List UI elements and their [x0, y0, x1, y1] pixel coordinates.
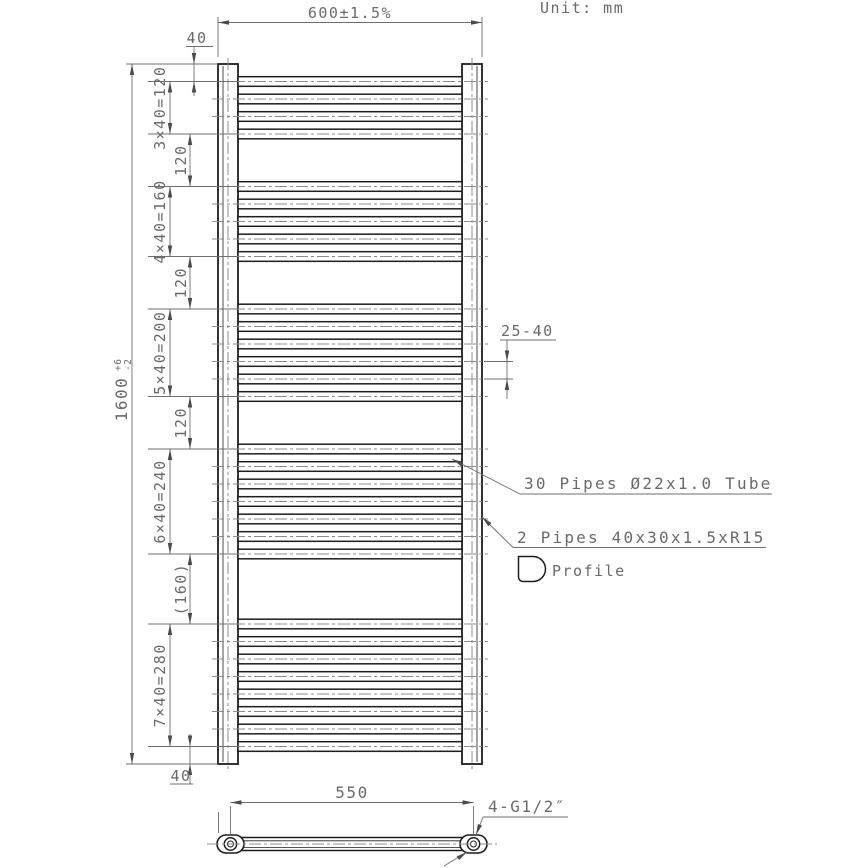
arrowhead — [168, 543, 172, 554]
height-tol-minus: -2 — [123, 359, 134, 371]
group-dim-label: 5×40=200 — [151, 311, 169, 395]
arrowhead — [188, 736, 192, 747]
group-dim-label: 7×40=280 — [151, 643, 169, 727]
height-dim-label: 1600 — [112, 377, 131, 422]
profile-label: Profile — [552, 562, 626, 580]
arrowhead — [505, 351, 509, 362]
leader-arrowhead — [474, 824, 482, 836]
pipe-gap-label: 25-40 — [501, 322, 554, 340]
top-offset-label: 40 — [186, 29, 207, 47]
arrowhead — [188, 438, 192, 449]
arrowhead — [130, 753, 134, 764]
unit-label: Unit: mm — [540, 0, 624, 17]
port-size-label: 4-G1/2″ — [488, 797, 566, 816]
arrowhead — [130, 64, 134, 75]
arrowhead — [231, 800, 242, 804]
arrowhead — [188, 176, 192, 187]
arrowhead — [463, 800, 474, 804]
gap-dim-label: 120 — [172, 407, 190, 439]
arrowhead — [192, 82, 196, 93]
arrowhead — [188, 257, 192, 268]
arrowhead — [188, 134, 192, 145]
group-dim-label: 4×40=160 — [151, 179, 169, 263]
arrowhead — [471, 20, 482, 24]
arrowhead — [188, 298, 192, 309]
arrowhead — [168, 624, 172, 635]
arrowhead — [218, 20, 229, 24]
square-pipes-annotation: 2 Pipes 40x30x1.5xR15 — [517, 528, 766, 547]
radiator-technical-drawing: 1600+6-23×40=1204×40=1605×40=2006×40=240… — [0, 0, 868, 868]
width-dim-label: 600±1.5% — [308, 4, 392, 22]
gap-dim-label: 120 — [172, 144, 190, 176]
round-pipes-annotation: 30 Pipes Ø22x1.0 Tube — [524, 474, 773, 493]
arrowhead — [168, 736, 172, 747]
drawing-sheet: 1600+6-23×40=1204×40=1605×40=2006×40=240… — [0, 0, 868, 868]
group-dim-label: 6×40=240 — [151, 459, 169, 543]
profile-icon — [519, 557, 546, 582]
port-spacing-label: 550 — [335, 783, 368, 802]
bottom-offset-label: 40 — [170, 767, 191, 785]
arrowhead — [168, 449, 172, 460]
arrowhead — [505, 379, 509, 390]
height-dimension: 1600+6-2 — [112, 359, 134, 422]
gap-dim-label: 120 — [172, 267, 190, 299]
gap-dim-label: (160) — [172, 563, 190, 616]
arrowhead — [188, 397, 192, 408]
group-dim-label: 3×40=120 — [151, 66, 169, 150]
arrowhead — [192, 53, 196, 64]
